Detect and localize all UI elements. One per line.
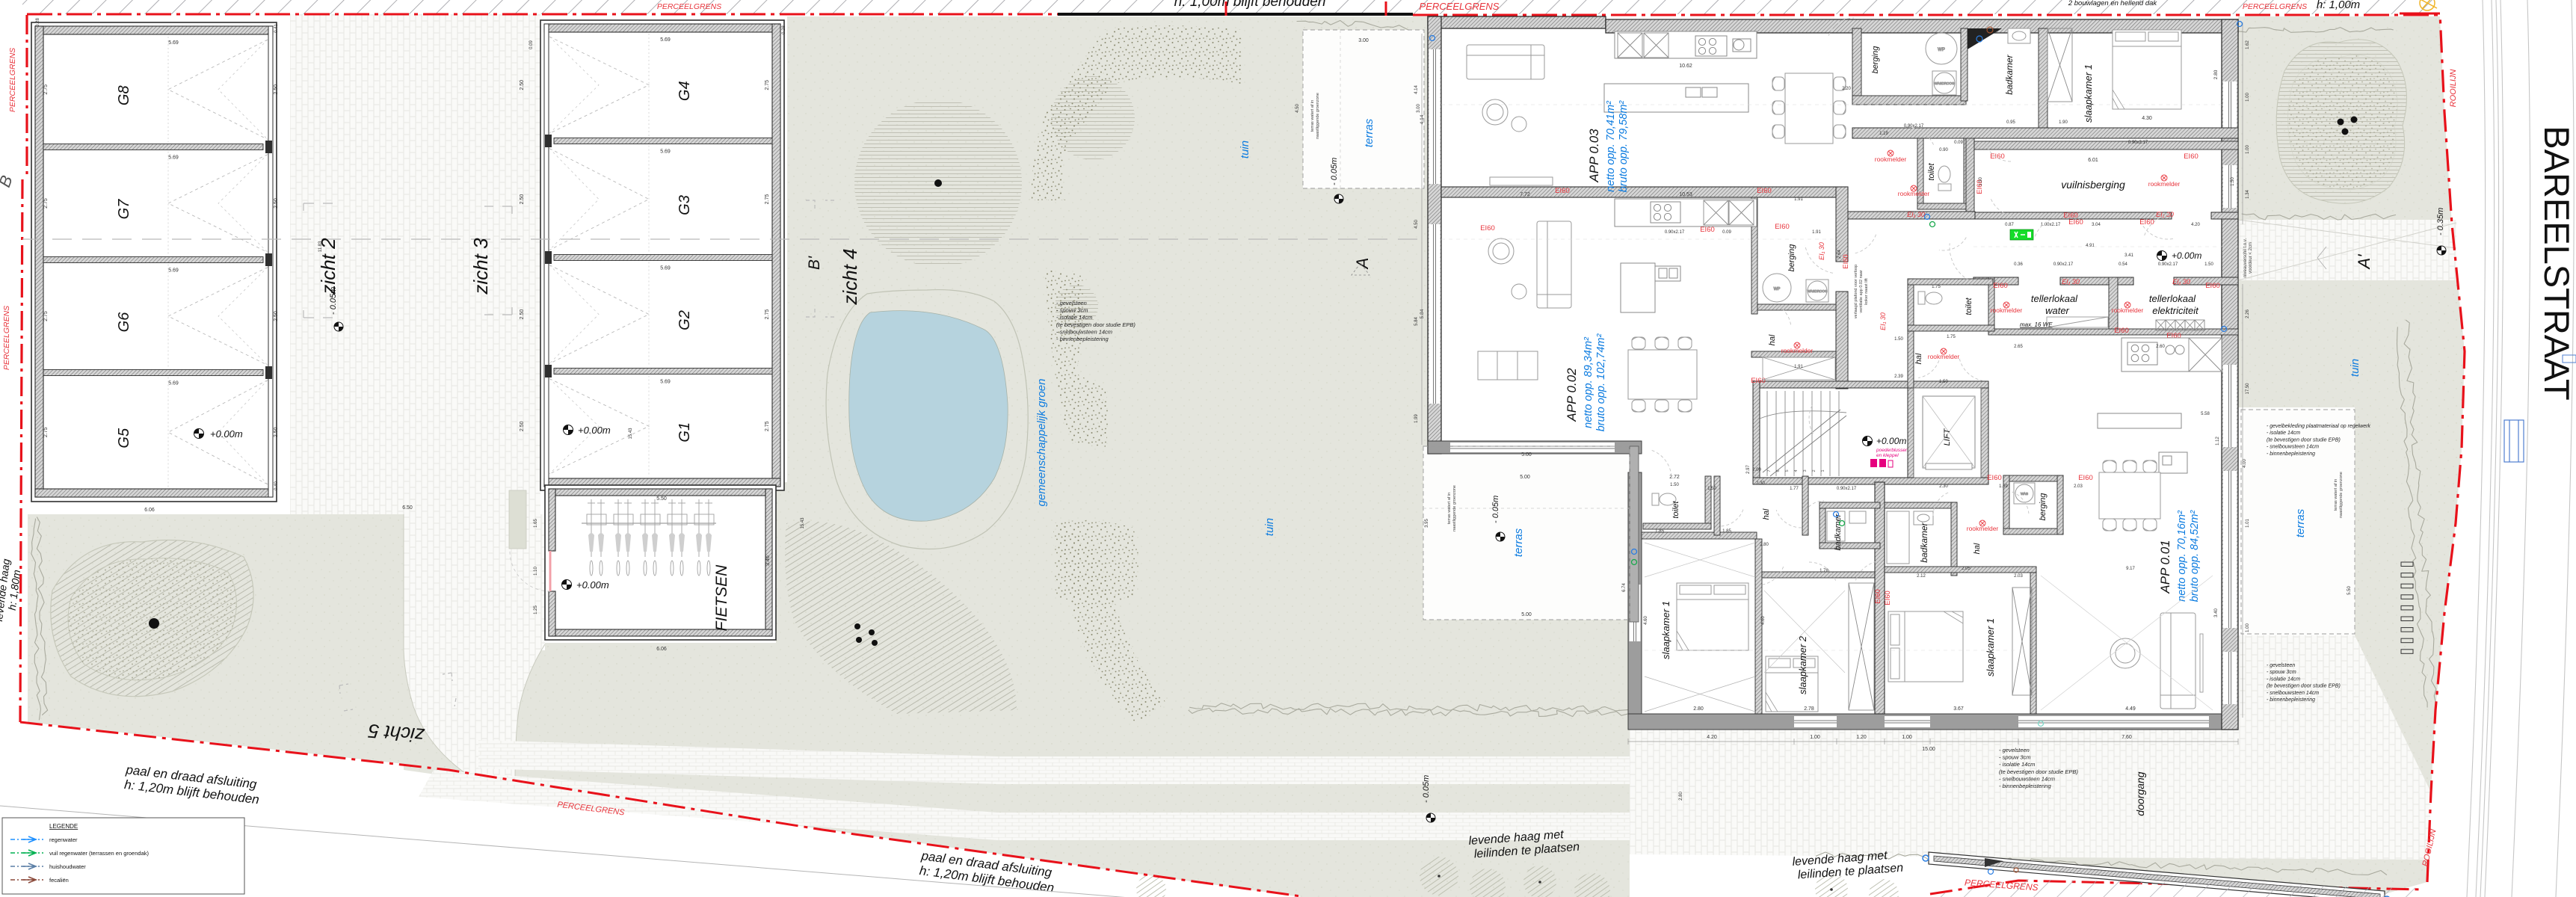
svg-text:hal: hal bbox=[1762, 508, 1771, 520]
svg-text:1.50: 1.50 bbox=[1707, 487, 1716, 491]
svg-text:fecaliën: fecaliën bbox=[49, 877, 69, 884]
svg-text:4.60: 4.60 bbox=[1644, 616, 1648, 625]
svg-text:2.50: 2.50 bbox=[520, 309, 525, 320]
svg-text:2.30: 2.30 bbox=[1756, 481, 1765, 486]
svg-text:0.54: 0.54 bbox=[2119, 262, 2127, 267]
svg-text:niveauverschil t.o.v.: niveauverschil t.o.v. bbox=[2243, 238, 2248, 278]
svg-text:2: 2 bbox=[1812, 469, 1817, 472]
svg-text:PERCEELGRENS: PERCEELGRENS bbox=[8, 48, 17, 112]
svg-text:LIFT: LIFT bbox=[1943, 428, 1952, 446]
svg-text:1.91: 1.91 bbox=[1794, 197, 1803, 202]
svg-text:7: 7 bbox=[1767, 469, 1772, 472]
svg-text:10.53: 10.53 bbox=[1679, 192, 1692, 197]
svg-text:- 0.05m: - 0.05m bbox=[329, 287, 338, 315]
svg-text:5.50: 5.50 bbox=[2347, 586, 2352, 595]
svg-text:1.50: 1.50 bbox=[1670, 483, 1679, 487]
svg-text:1.00: 1.00 bbox=[1810, 735, 1820, 740]
svg-text:APP 0.01: APP 0.01 bbox=[2158, 540, 2172, 594]
svg-text:2.65: 2.65 bbox=[2014, 345, 2023, 349]
svg-text:2.80: 2.80 bbox=[1679, 792, 1683, 801]
svg-text:0.28: 0.28 bbox=[782, 25, 786, 34]
svg-text:1.91: 1.91 bbox=[1812, 230, 1821, 235]
svg-text:EI60: EI60 bbox=[1700, 226, 1715, 234]
svg-text:3.67: 3.67 bbox=[1953, 706, 1964, 712]
svg-text:rookmelder: rookmelder bbox=[1781, 347, 1814, 354]
svg-text:WASDROOG: WASDROOG bbox=[1934, 81, 1955, 85]
svg-text:elektriciteit: elektriciteit bbox=[2152, 305, 2199, 316]
svg-text:2.75: 2.75 bbox=[43, 198, 49, 209]
svg-text:(te bevestigen door studie EPB: (te bevestigen door studie EPB) bbox=[2267, 684, 2341, 689]
svg-text:G1: G1 bbox=[677, 422, 693, 443]
svg-text:1.85: 1.85 bbox=[1655, 529, 1664, 534]
svg-text:badkamer: badkamer bbox=[1834, 513, 1843, 550]
svg-text:4.20: 4.20 bbox=[1707, 735, 1717, 740]
svg-text:G7: G7 bbox=[116, 199, 132, 220]
svg-text:2.50: 2.50 bbox=[520, 80, 525, 90]
svg-text:WAS: WAS bbox=[2021, 492, 2028, 496]
svg-text:badkamer: badkamer bbox=[2004, 54, 2015, 94]
svg-text:2.03: 2.03 bbox=[2074, 484, 2083, 489]
svg-text:EI60: EI60 bbox=[1987, 474, 2002, 482]
svg-text:- isolatie 14cm: - isolatie 14cm bbox=[1999, 761, 2035, 768]
svg-text:slaapkamer 1: slaapkamer 1 bbox=[2083, 64, 2094, 123]
svg-text:1.25: 1.25 bbox=[534, 605, 538, 614]
svg-text:water: water bbox=[2045, 305, 2069, 316]
svg-text:6.06: 6.06 bbox=[144, 508, 155, 513]
svg-text:slaapkamer 1: slaapkamer 1 bbox=[1660, 601, 1671, 659]
svg-text:4.50: 4.50 bbox=[1295, 104, 1300, 113]
svg-text:h: 1,00m: h: 1,00m bbox=[2317, 0, 2360, 11]
svg-text:terras watert af in: terras watert af in bbox=[1310, 100, 1315, 132]
svg-text:vuilnisberging: vuilnisberging bbox=[2061, 179, 2125, 191]
svg-text:1.12: 1.12 bbox=[2216, 437, 2220, 446]
svg-text:rookmelder: rookmelder bbox=[1875, 155, 1907, 163]
svg-text:- 0.35m: - 0.35m bbox=[2436, 208, 2445, 235]
svg-text:hal: hal bbox=[1768, 334, 1777, 345]
svg-text:- gevelbekleding plaatmateriaa: - gevelbekleding plaatmateriaal op regel… bbox=[2267, 424, 2370, 429]
svg-text:G2: G2 bbox=[677, 310, 693, 330]
svg-text:+0.00m: +0.00m bbox=[1876, 436, 1906, 446]
svg-text:tellerlokaal: tellerlokaal bbox=[2031, 293, 2078, 304]
svg-text:3.04: 3.04 bbox=[2092, 223, 2101, 227]
svg-text:slaapkamer 2: slaapkamer 2 bbox=[1797, 635, 1808, 694]
svg-text:0.36: 0.36 bbox=[2014, 262, 2023, 267]
svg-text:1.77: 1.77 bbox=[1790, 487, 1799, 491]
svg-text:netto opp. 89,34m²: netto opp. 89,34m² bbox=[1583, 336, 1594, 428]
svg-text:netto opp. 70,16m²: netto opp. 70,16m² bbox=[2176, 510, 2188, 602]
svg-text:+0.00m: +0.00m bbox=[578, 425, 611, 436]
svg-text:7.72: 7.72 bbox=[1520, 192, 1530, 197]
svg-text:terras: terras bbox=[1363, 118, 1375, 147]
svg-text:2.64: 2.64 bbox=[1837, 250, 1842, 259]
svg-text:poederblusser: poederblusser bbox=[1876, 448, 1908, 453]
svg-text:0.90x2.17: 0.90x2.17 bbox=[2128, 141, 2148, 145]
svg-text:1.75: 1.75 bbox=[1932, 285, 1941, 289]
svg-text:EI60: EI60 bbox=[2068, 218, 2083, 226]
svg-text:LEGENDE: LEGENDE bbox=[49, 823, 78, 830]
svg-text:1.00: 1.00 bbox=[2246, 145, 2250, 154]
svg-text:1.50: 1.50 bbox=[2231, 177, 2235, 186]
svg-text:0.41: 0.41 bbox=[274, 24, 279, 33]
svg-text:1.69: 1.69 bbox=[1999, 484, 2008, 489]
svg-text:2.50: 2.50 bbox=[274, 84, 279, 95]
svg-text:EI60: EI60 bbox=[1751, 377, 1766, 385]
svg-text:2.75: 2.75 bbox=[43, 311, 49, 321]
svg-text:APP 0.02: APP 0.02 bbox=[1565, 368, 1579, 422]
svg-text:EI60: EI60 bbox=[1990, 152, 2005, 161]
svg-text:berging: berging bbox=[1871, 46, 1880, 74]
svg-text:- snelbouwsteen 14cm: - snelbouwsteen 14cm bbox=[2267, 691, 2319, 696]
svg-text:2.39: 2.39 bbox=[1894, 374, 1903, 379]
svg-text:- binnenbepleistering: - binnenbepleistering bbox=[1999, 783, 2051, 789]
svg-text:2.75: 2.75 bbox=[43, 427, 49, 437]
svg-text:FIETSEN: FIETSEN bbox=[713, 564, 730, 632]
svg-text:6.50: 6.50 bbox=[402, 505, 413, 511]
svg-text:5.84: 5.84 bbox=[1414, 317, 1419, 326]
svg-text:1.20: 1.20 bbox=[1856, 735, 1867, 740]
svg-text:17.50: 17.50 bbox=[2246, 383, 2250, 395]
svg-text:1.75: 1.75 bbox=[1947, 335, 1956, 339]
svg-text:7.60: 7.60 bbox=[2121, 735, 2132, 740]
svg-text:naastliggende groenzone: naastliggende groenzone bbox=[2339, 472, 2344, 518]
svg-text:5.69: 5.69 bbox=[168, 40, 179, 46]
svg-text:2.20: 2.20 bbox=[1842, 87, 1851, 91]
svg-text:2.75: 2.75 bbox=[765, 309, 770, 320]
svg-text:- snelbouwsteen 14cm: - snelbouwsteen 14cm bbox=[1999, 775, 2055, 782]
svg-text:EI60: EI60 bbox=[1757, 187, 1772, 195]
svg-text:- 0.05m: - 0.05m bbox=[1491, 496, 1500, 523]
svg-text:2.80: 2.80 bbox=[1693, 706, 1704, 712]
svg-text:1.78: 1.78 bbox=[1819, 569, 1828, 573]
svg-text:EI60: EI60 bbox=[1842, 254, 1850, 269]
svg-text:0.09: 0.09 bbox=[1722, 230, 1731, 235]
svg-text:0.90x2.17: 0.90x2.17 bbox=[1665, 230, 1685, 235]
svg-text:4.00: 4.00 bbox=[2243, 459, 2247, 468]
svg-text:verlaagd plafond voor verloop: verlaagd plafond voor verloop bbox=[1854, 265, 1858, 318]
svg-text:- gevelsteen: - gevelsteen bbox=[1056, 300, 1087, 306]
svg-text:4.14: 4.14 bbox=[1414, 85, 1419, 94]
svg-text:2.75: 2.75 bbox=[765, 421, 770, 431]
svg-text:+0.00m: +0.00m bbox=[210, 428, 243, 440]
svg-text:EI₁ 30: EI₁ 30 bbox=[1907, 211, 1925, 218]
svg-text:1.90: 1.90 bbox=[2059, 120, 2068, 125]
svg-text:G8: G8 bbox=[116, 85, 132, 105]
svg-text:6.06: 6.06 bbox=[656, 647, 667, 652]
svg-text:ROOILIJN: ROOILIJN bbox=[2449, 70, 2458, 108]
svg-text:1.50: 1.50 bbox=[1894, 337, 1903, 342]
svg-text:tuin: tuin bbox=[1263, 518, 1276, 536]
svg-text:(te bevestigen door studie EPB: (te bevestigen door studie EPB) bbox=[1056, 321, 1136, 328]
svg-text:- snelbouwsteen 14cm: - snelbouwsteen 14cm bbox=[1056, 328, 1112, 335]
svg-text:rookmelder: rookmelder bbox=[2112, 306, 2144, 314]
svg-text:1.85: 1.85 bbox=[1722, 529, 1731, 534]
svg-text:netto opp. 70,41m²: netto opp. 70,41m² bbox=[1605, 100, 1617, 192]
svg-text:1.00: 1.00 bbox=[2246, 623, 2250, 632]
svg-text:1.00x2.17: 1.00x2.17 bbox=[2041, 223, 2061, 227]
svg-text:toilet: toilet bbox=[1927, 162, 1936, 180]
svg-text:4.60: 4.60 bbox=[1761, 616, 1766, 625]
svg-text:9.17: 9.17 bbox=[2126, 567, 2135, 571]
svg-text:1: 1 bbox=[1821, 469, 1825, 472]
svg-text:- gevelsteen: - gevelsteen bbox=[2267, 663, 2295, 668]
svg-text:berging: berging bbox=[1787, 244, 1796, 272]
svg-text:EI₁ 30: EI₁ 30 bbox=[2156, 211, 2174, 218]
svg-text:- snelbouwsteen 14cm: - snelbouwsteen 14cm bbox=[2267, 445, 2319, 450]
svg-text:2.00: 2.00 bbox=[1752, 468, 1761, 472]
svg-text:terras watert af in: terras watert af in bbox=[1447, 493, 1452, 525]
svg-text:naastliggende groenzone: naastliggende groenzone bbox=[1316, 93, 1320, 139]
svg-text:1.50: 1.50 bbox=[2204, 262, 2213, 267]
svg-text:1.62: 1.62 bbox=[2246, 40, 2250, 49]
svg-text:1.10: 1.10 bbox=[534, 567, 538, 576]
svg-text:WP: WP bbox=[1774, 287, 1781, 292]
svg-text:rookmelder: rookmelder bbox=[1991, 306, 2023, 314]
svg-text:EI60: EI60 bbox=[1555, 187, 1570, 195]
svg-text:ventilatie app 0.02 naar: ventilatie app 0.02 naar bbox=[1859, 270, 1864, 312]
svg-text:0.87: 0.87 bbox=[2005, 223, 2014, 227]
svg-text:en kleppel: en kleppel bbox=[1876, 453, 1899, 458]
svg-text:+0.00m: +0.00m bbox=[576, 579, 609, 591]
svg-text:1.00: 1.00 bbox=[2246, 93, 2250, 102]
svg-text:3.00: 3.00 bbox=[1417, 104, 1421, 113]
svg-text:terras watert af in: terras watert af in bbox=[2334, 479, 2338, 511]
svg-text:EI₁ 30: EI₁ 30 bbox=[2062, 278, 2080, 286]
svg-text:1.00: 1.00 bbox=[1902, 735, 1912, 740]
svg-text:2.50: 2.50 bbox=[274, 311, 279, 321]
svg-text:5.69: 5.69 bbox=[660, 37, 671, 43]
svg-text:WASDROOG: WASDROOG bbox=[1807, 289, 1828, 293]
svg-text:EI60: EI60 bbox=[2184, 152, 2198, 161]
svg-text:G4: G4 bbox=[677, 81, 693, 101]
svg-text:EI₁ 30: EI₁ 30 bbox=[1818, 242, 1825, 260]
svg-text:1.19: 1.19 bbox=[1879, 132, 1888, 136]
svg-text:0.90x2.17: 0.90x2.17 bbox=[2053, 262, 2074, 267]
svg-text:4.30: 4.30 bbox=[2142, 116, 2152, 121]
svg-text:(te bevestigen door studie EPB: (te bevestigen door studie EPB) bbox=[2267, 437, 2341, 443]
svg-text:5.50: 5.50 bbox=[656, 496, 667, 502]
svg-text:EI60: EI60 bbox=[1884, 591, 1892, 605]
svg-text:5.69: 5.69 bbox=[168, 381, 179, 386]
svg-text:badkamer: badkamer bbox=[1919, 522, 1929, 562]
svg-text:EI60: EI60 bbox=[1480, 224, 1495, 232]
svg-text:5.69: 5.69 bbox=[168, 268, 179, 274]
svg-text:15.43: 15.43 bbox=[629, 428, 633, 440]
svg-text:berging: berging bbox=[2039, 493, 2047, 521]
svg-text:2.75: 2.75 bbox=[765, 194, 770, 205]
svg-text:slaapkamer 1: slaapkamer 1 bbox=[1985, 618, 1996, 676]
svg-text:EI60: EI60 bbox=[2114, 327, 2129, 335]
svg-text:3.41: 3.41 bbox=[2124, 253, 2133, 258]
svg-text:doorgang: doorgang bbox=[2134, 771, 2146, 816]
svg-text:2.50: 2.50 bbox=[520, 194, 525, 205]
svg-text:5: 5 bbox=[1785, 469, 1790, 472]
svg-text:rookmelder: rookmelder bbox=[1928, 353, 1960, 360]
svg-text:EI60: EI60 bbox=[2078, 474, 2093, 482]
svg-text:PERCEELGRENS: PERCEELGRENS bbox=[1420, 1, 1500, 12]
svg-text:voordeur < 2cm: voordeur < 2cm bbox=[2249, 242, 2253, 274]
svg-text:2.80: 2.80 bbox=[2213, 70, 2219, 79]
svg-text:- isolatie 14cm: - isolatie 14cm bbox=[2267, 676, 2300, 682]
svg-text:15.43: 15.43 bbox=[801, 517, 805, 529]
svg-text:2.12: 2.12 bbox=[1917, 574, 1926, 579]
svg-text:2 bouwlagen en hellend dak: 2 bouwlagen en hellend dak bbox=[2068, 0, 2158, 7]
svg-text:h: 1,00m blijft behouden: h: 1,00m blijft behouden bbox=[1174, 0, 1326, 10]
svg-text:bruto opp. 102,74m²: bruto opp. 102,74m² bbox=[1595, 333, 1607, 432]
svg-text:zicht 3: zicht 3 bbox=[469, 238, 492, 295]
svg-text:EI60: EI60 bbox=[1874, 589, 1882, 604]
svg-text:6: 6 bbox=[1776, 469, 1781, 472]
svg-text:2.97: 2.97 bbox=[1746, 465, 1751, 474]
svg-text:2.05: 2.05 bbox=[1962, 567, 1970, 571]
svg-text:5.58: 5.58 bbox=[2201, 412, 2210, 416]
svg-text:terras: terras bbox=[1512, 528, 1525, 557]
svg-text:G3: G3 bbox=[677, 195, 693, 215]
svg-text:EI60: EI60 bbox=[1993, 282, 2008, 290]
svg-text:- spouw 3cm: - spouw 3cm bbox=[1056, 307, 1088, 314]
svg-text:0.28: 0.28 bbox=[36, 18, 40, 27]
svg-text:1.50: 1.50 bbox=[1979, 177, 1983, 186]
svg-text:4.20: 4.20 bbox=[2191, 223, 2200, 227]
svg-text:- gevelsteen: - gevelsteen bbox=[1999, 747, 2030, 753]
svg-text:3: 3 bbox=[1803, 469, 1808, 472]
svg-text:0.09: 0.09 bbox=[529, 40, 534, 49]
svg-text:(te bevestigen door studie EPB: (te bevestigen door studie EPB) bbox=[1999, 768, 2078, 775]
svg-text:bruto opp. 79,58m²: bruto opp. 79,58m² bbox=[1618, 100, 1630, 193]
svg-text:G6: G6 bbox=[116, 312, 132, 333]
svg-text:4.91: 4.91 bbox=[2086, 244, 2095, 248]
svg-text:5.69: 5.69 bbox=[660, 266, 671, 271]
svg-text:5.00: 5.00 bbox=[1521, 612, 1532, 617]
svg-text:bruto opp. 84,52m²: bruto opp. 84,52m² bbox=[2189, 510, 2201, 602]
svg-text:A: A bbox=[1353, 258, 1372, 271]
svg-text:+0.00m: +0.00m bbox=[2172, 250, 2201, 261]
svg-text:5.00: 5.00 bbox=[1520, 475, 1530, 480]
svg-text:2.78: 2.78 bbox=[1804, 706, 1814, 712]
svg-text:1.65: 1.65 bbox=[534, 519, 538, 528]
svg-text:0.40: 0.40 bbox=[274, 481, 279, 490]
svg-text:6.01: 6.01 bbox=[2088, 158, 2098, 163]
svg-text:3.46: 3.46 bbox=[765, 555, 771, 566]
svg-text:1.34: 1.34 bbox=[2246, 190, 2250, 199]
svg-text:1.50: 1.50 bbox=[1939, 380, 1948, 384]
svg-text:A': A' bbox=[2355, 254, 2373, 271]
svg-text:6.74: 6.74 bbox=[1622, 583, 1627, 592]
svg-text:0.90x2.17: 0.90x2.17 bbox=[1837, 487, 1857, 491]
svg-text:15.00: 15.00 bbox=[1922, 747, 1935, 752]
svg-text:4: 4 bbox=[1794, 469, 1799, 472]
svg-text:rookmelder: rookmelder bbox=[1898, 190, 1930, 197]
svg-text:zicht 4: zicht 4 bbox=[839, 248, 861, 305]
svg-text:1.91: 1.91 bbox=[1794, 365, 1803, 369]
svg-text:2.26: 2.26 bbox=[2246, 309, 2250, 318]
svg-text:2.50: 2.50 bbox=[274, 198, 279, 209]
svg-text:3.95: 3.95 bbox=[1425, 519, 1429, 528]
svg-text:3.40: 3.40 bbox=[2214, 608, 2219, 617]
svg-text:hal: hal bbox=[1973, 543, 1982, 554]
svg-text:1.99: 1.99 bbox=[1414, 414, 1419, 423]
svg-text:2.30: 2.30 bbox=[1939, 484, 1948, 489]
svg-text:tuin: tuin bbox=[2349, 359, 2361, 377]
svg-text:5.00: 5.00 bbox=[1521, 452, 1532, 457]
svg-text:2.50: 2.50 bbox=[274, 427, 279, 437]
svg-text:10.62: 10.62 bbox=[1679, 64, 1692, 69]
svg-text:- spouw 3cm: - spouw 3cm bbox=[2267, 670, 2296, 675]
svg-text:naastliggende groenzone: naastliggende groenzone bbox=[1452, 485, 1457, 531]
svg-text:1.01: 1.01 bbox=[2246, 519, 2250, 528]
svg-text:2.72: 2.72 bbox=[1669, 475, 1680, 480]
svg-text:- binnenbepleistering: - binnenbepleistering bbox=[2267, 451, 2315, 457]
svg-text:5.84: 5.84 bbox=[1420, 309, 1425, 318]
svg-text:0.90: 0.90 bbox=[1939, 148, 1948, 152]
svg-text:2.75: 2.75 bbox=[765, 80, 770, 90]
svg-text:3.00: 3.00 bbox=[1358, 38, 1369, 43]
svg-text:PERCEELGRENS: PERCEELGRENS bbox=[2, 306, 11, 370]
svg-text:- 0.05m: - 0.05m bbox=[1422, 775, 1431, 803]
svg-text:WP: WP bbox=[1938, 48, 1945, 52]
svg-text:5.69: 5.69 bbox=[168, 155, 179, 161]
svg-text:rookmelder: rookmelder bbox=[2148, 180, 2181, 188]
svg-text:2.60: 2.60 bbox=[2156, 345, 2165, 349]
svg-text:4.49: 4.49 bbox=[2125, 706, 2136, 712]
svg-text:EI60: EI60 bbox=[2205, 282, 2220, 290]
svg-text:regenwater: regenwater bbox=[49, 836, 78, 843]
svg-text:gemeenschappelijk groen: gemeenschappelijk groen bbox=[1035, 379, 1048, 507]
svg-text:huishoudwater: huishoudwater bbox=[49, 863, 86, 870]
svg-text:EI₁ 30: EI₁ 30 bbox=[2172, 278, 2190, 286]
svg-text:B': B' bbox=[806, 256, 823, 270]
svg-text:EI₁ 30: EI₁ 30 bbox=[1879, 312, 1887, 330]
svg-text:2.03: 2.03 bbox=[2014, 574, 2023, 579]
svg-text:vuil regenwater (terrassen en: vuil regenwater (terrassen en groendak) bbox=[49, 850, 149, 857]
svg-text:- isolatie 14cm: - isolatie 14cm bbox=[2267, 431, 2300, 436]
svg-text:BAREELSTRAAT: BAREELSTRAAT bbox=[2537, 126, 2576, 400]
svg-text:5.69: 5.69 bbox=[660, 380, 671, 385]
svg-text:11.83: 11.83 bbox=[318, 241, 323, 252]
svg-text:- isolatie 14cm: - isolatie 14cm bbox=[1056, 314, 1092, 321]
svg-text:EI60: EI60 bbox=[1775, 223, 1790, 231]
svg-text:terras: terras bbox=[2294, 508, 2307, 537]
svg-text:0.95: 0.95 bbox=[2006, 120, 2015, 125]
svg-text:tellerlokaal: tellerlokaal bbox=[2149, 293, 2196, 304]
svg-text:- binnenbepleistering: - binnenbepleistering bbox=[1056, 336, 1109, 342]
svg-text:- binnenbepleistering: - binnenbepleistering bbox=[2267, 697, 2315, 703]
svg-text:2.80: 2.80 bbox=[1760, 543, 1769, 547]
svg-text:PERCEELGRENS: PERCEELGRENS bbox=[2243, 2, 2307, 11]
svg-text:APP 0.03: APP 0.03 bbox=[1587, 129, 1601, 183]
svg-text:hal: hal bbox=[1914, 353, 1923, 364]
svg-text:rookmelder: rookmelder bbox=[1967, 525, 1999, 532]
svg-text:G5: G5 bbox=[116, 428, 132, 449]
svg-text:koker naast lift: koker naast lift bbox=[1864, 278, 1869, 305]
svg-text:tuin: tuin bbox=[1239, 141, 1251, 158]
svg-text:4.50: 4.50 bbox=[1414, 220, 1419, 229]
svg-text:- spouw 3cm: - spouw 3cm bbox=[1999, 754, 2031, 761]
svg-text:toilet: toilet bbox=[1671, 500, 1680, 518]
svg-text:- 0.05m: - 0.05m bbox=[1330, 158, 1339, 185]
svg-text:0.90x2.17: 0.90x2.17 bbox=[1904, 124, 1924, 129]
svg-text:toilet: toilet bbox=[1965, 297, 1973, 315]
svg-text:0.90x2.17: 0.90x2.17 bbox=[2158, 262, 2178, 267]
svg-text:2.75: 2.75 bbox=[43, 84, 49, 95]
svg-text:0.09: 0.09 bbox=[1954, 141, 1963, 145]
svg-text:PERCEELGRENS: PERCEELGRENS bbox=[657, 2, 721, 11]
svg-text:2.50: 2.50 bbox=[520, 421, 525, 431]
svg-text:5.69: 5.69 bbox=[660, 149, 671, 155]
svg-text:EI60: EI60 bbox=[2139, 218, 2154, 226]
